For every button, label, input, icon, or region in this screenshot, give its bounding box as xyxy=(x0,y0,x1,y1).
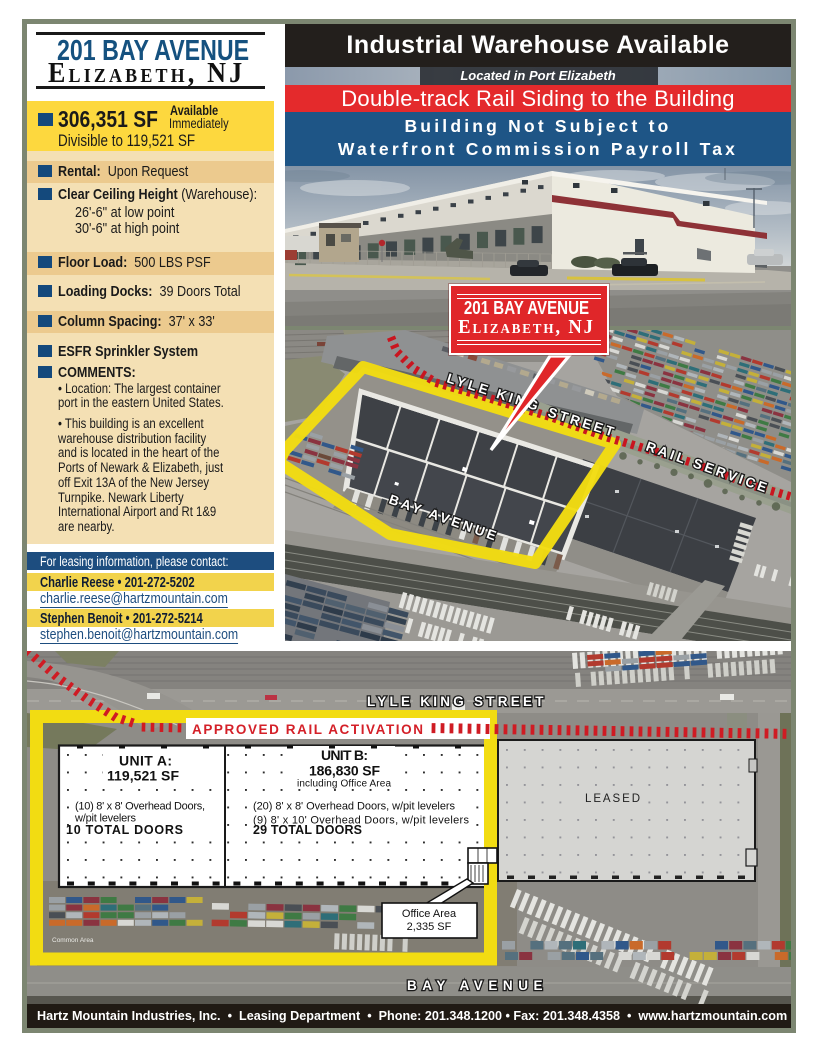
svg-text:119,521 SF: 119,521 SF xyxy=(107,768,179,784)
svg-text:LYLE KING STREET: LYLE KING STREET xyxy=(367,694,548,709)
svg-text:2,335 SF: 2,335 SF xyxy=(407,921,452,933)
svg-text:29 TOTAL DOORS: 29 TOTAL DOORS xyxy=(253,823,362,837)
svg-text:186,830 SF: 186,830 SF xyxy=(309,763,380,779)
svg-text:(20) 8' x 8' Overhead Doors,: (20) 8' x 8' Overhead Doors, w/pit level… xyxy=(253,801,456,813)
svg-text:APPROVED RAIL ACTIVATION: APPROVED RAIL ACTIVATION xyxy=(192,722,423,737)
svg-text:including Office Area: including Office Area xyxy=(297,779,391,790)
svg-text:UNIT A:: UNIT A: xyxy=(119,753,172,769)
svg-text:LEASED: LEASED xyxy=(585,793,640,805)
svg-text:Common Area: Common Area xyxy=(52,937,94,944)
svg-text:Office Area: Office Area xyxy=(402,908,457,920)
svg-text:(10) 8' x 8' Overhead Doors,: (10) 8' x 8' Overhead Doors, xyxy=(75,801,205,813)
svg-text:10 TOTAL DOORS: 10 TOTAL DOORS xyxy=(66,823,183,837)
svg-text:UNIT B:: UNIT B: xyxy=(321,747,368,763)
svg-text:BAY AVENUE: BAY AVENUE xyxy=(407,978,547,993)
